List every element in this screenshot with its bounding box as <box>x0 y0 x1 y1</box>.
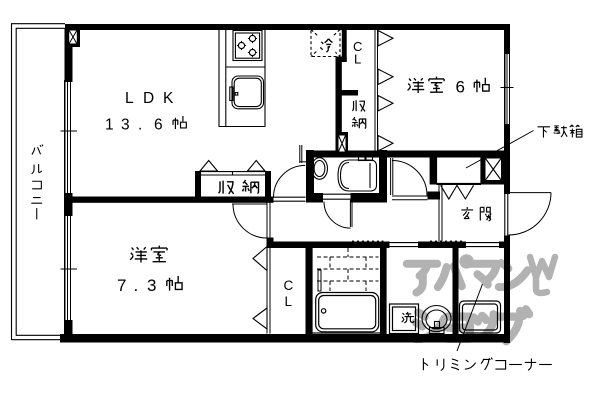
svg-text:L: L <box>354 52 361 67</box>
svg-text:7: 7 <box>117 276 126 295</box>
svg-text:1: 1 <box>105 117 114 134</box>
svg-text:3: 3 <box>147 276 156 295</box>
svg-text:6: 6 <box>154 117 163 134</box>
svg-text:D: D <box>143 90 154 107</box>
svg-text:K: K <box>163 90 174 107</box>
svg-text:.: . <box>134 276 139 295</box>
svg-text:6: 6 <box>456 78 465 97</box>
svg-text:3: 3 <box>121 117 130 134</box>
svg-text:L: L <box>285 294 293 309</box>
svg-text:L: L <box>125 90 134 107</box>
svg-text:C: C <box>284 278 294 293</box>
svg-text:.: . <box>138 117 142 134</box>
